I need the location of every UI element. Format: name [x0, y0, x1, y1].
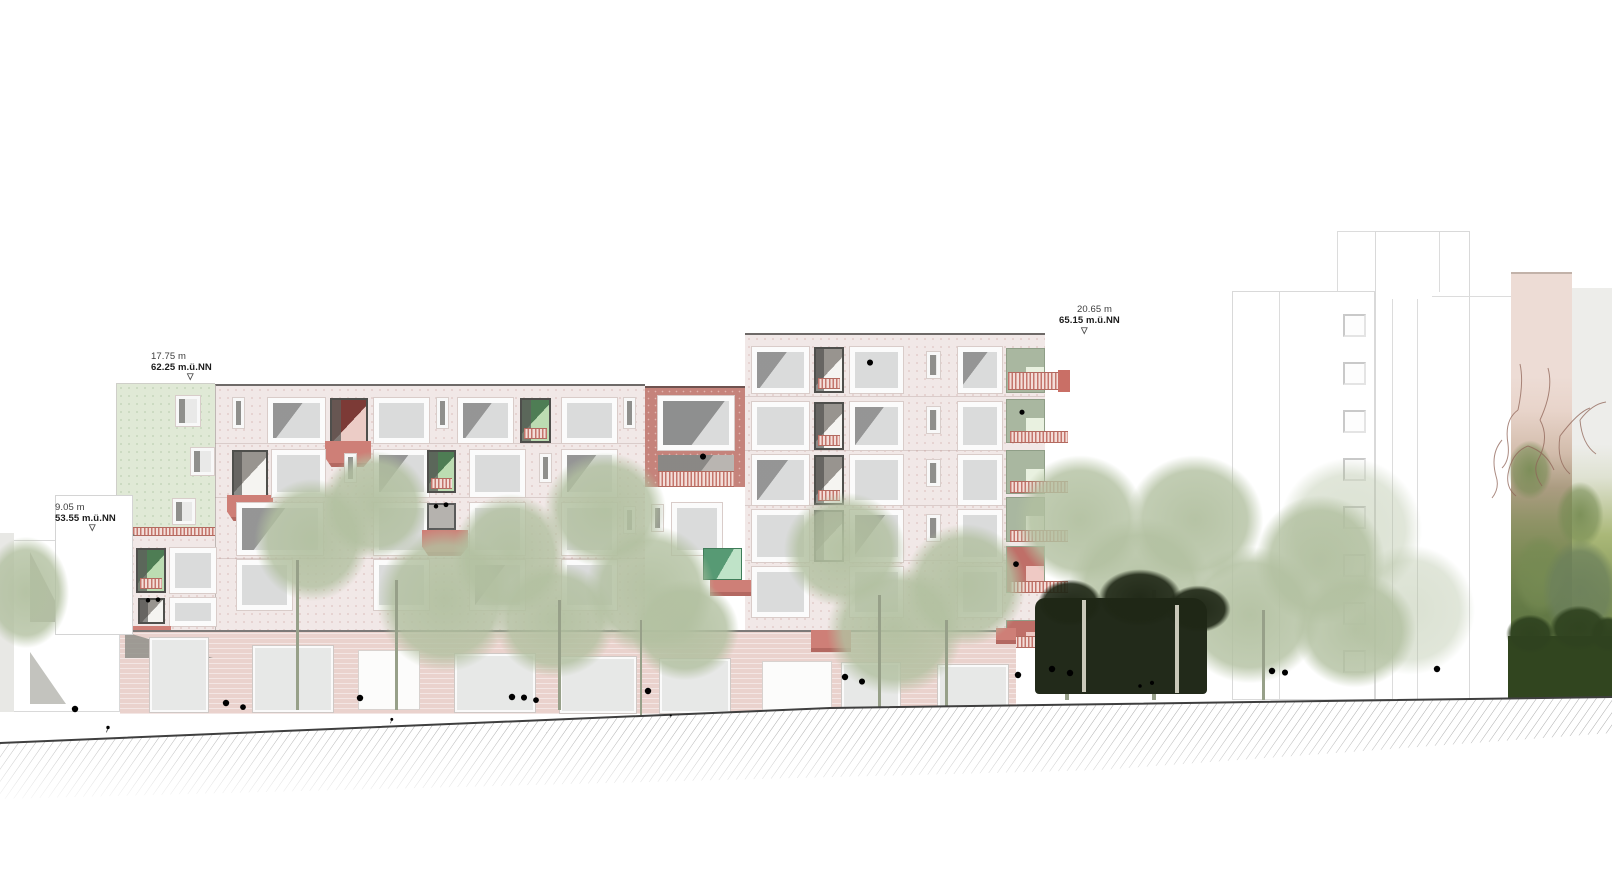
roof-outline — [1337, 231, 1375, 232]
level-value: 62.25 m.ü.NN — [151, 362, 212, 373]
facade-joint-line — [1337, 232, 1338, 291]
window — [958, 402, 1002, 450]
window — [927, 407, 940, 433]
window — [658, 396, 734, 450]
window — [850, 402, 903, 450]
window — [958, 347, 1002, 393]
loggia-grey — [814, 402, 844, 450]
level-value: 65.15 m.ü.NN — [1059, 315, 1120, 326]
height-annotation: 20.65 m 65.15 m.ü.NN ▽ — [1059, 304, 1120, 326]
striped-awning-band — [133, 527, 215, 536]
height-value: 9.05 m — [55, 502, 116, 513]
dog-silhouette — [93, 726, 110, 740]
loggia-green — [136, 548, 166, 593]
storefront-glazing — [150, 638, 208, 712]
balcony-end-panel — [1058, 370, 1070, 392]
storefront-glazing — [253, 646, 333, 712]
window — [850, 347, 903, 393]
window — [191, 448, 214, 475]
hedge-top — [1584, 610, 1612, 658]
height-value: 17.75 m — [151, 351, 212, 362]
hatch-fade — [0, 730, 1612, 810]
below-grade-mask — [0, 697, 1612, 886]
height-value: 20.65 m — [1059, 304, 1120, 315]
tree-canopy — [610, 560, 760, 700]
loggia-railing — [140, 578, 162, 589]
window — [927, 460, 940, 486]
dark-tree-canopy — [1155, 578, 1241, 640]
window — [1343, 362, 1366, 385]
window — [170, 598, 216, 626]
facade-joint-line — [1432, 296, 1511, 297]
loggia-railing — [818, 435, 840, 446]
loggia-railing — [818, 378, 840, 389]
elevation-drawing: 17.75 m 62.25 m.ü.NN ▽ 9.05 m 53.55 m.ü.… — [0, 0, 1612, 886]
level-value: 53.55 m.ü.NN — [55, 513, 116, 524]
tree-trunk — [1262, 610, 1265, 700]
tree-trunk — [945, 620, 948, 710]
window — [458, 398, 513, 443]
tree-trunk — [296, 560, 299, 710]
window — [1343, 314, 1366, 337]
height-annotation: 9.05 m 53.55 m.ü.NN ▽ — [55, 502, 116, 524]
window — [927, 352, 940, 378]
tree-trunk — [878, 595, 881, 710]
window — [268, 398, 325, 443]
loggia-grey — [138, 598, 165, 624]
slab-line — [745, 450, 1045, 451]
window — [752, 402, 809, 450]
dog-silhouette — [379, 718, 393, 730]
tree-trunk — [558, 600, 561, 710]
loggia-green — [520, 398, 551, 443]
facade-joint-line — [1439, 232, 1440, 292]
window — [233, 398, 244, 428]
level-marker-icon: ▽ — [187, 372, 194, 380]
loggia-grey — [814, 347, 844, 393]
cat-silhouette — [662, 714, 672, 723]
window — [173, 499, 195, 524]
window — [176, 396, 200, 426]
window — [752, 347, 809, 393]
tree-trunk — [1082, 600, 1086, 692]
window — [437, 398, 448, 428]
tree-trunk — [1175, 605, 1179, 693]
tree-trunk — [395, 580, 398, 710]
level-marker-icon: ▽ — [1081, 326, 1088, 334]
loggia-railing — [524, 428, 547, 439]
window — [624, 398, 635, 428]
window — [170, 548, 216, 593]
slab-line — [745, 396, 1045, 397]
height-annotation: 17.75 m 62.25 m.ü.NN ▽ — [151, 351, 212, 373]
tree-canopy — [1320, 520, 1500, 700]
level-marker-icon: ▽ — [89, 523, 96, 531]
tree-trunk — [640, 620, 642, 715]
